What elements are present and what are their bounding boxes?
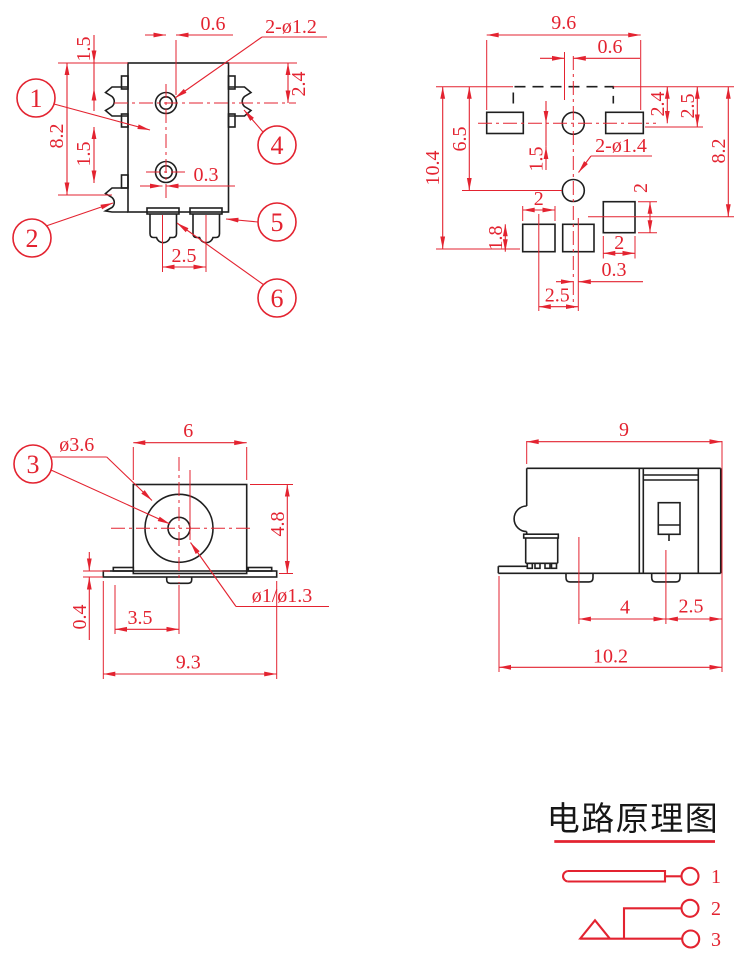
balloon-2: 2 bbox=[13, 203, 113, 257]
dim-9-6: 9.6 bbox=[487, 12, 641, 35]
view-top-left: 1.5 8.2 1.5 2.4 0.6 2-ø1.2 0.3 bbox=[13, 13, 327, 317]
dim-text: 10.2 bbox=[593, 645, 628, 667]
circuit-schematic: 电路原理图 1 2 3 bbox=[547, 801, 721, 951]
switch-contact bbox=[658, 525, 680, 541]
shell-tab bbox=[122, 175, 129, 188]
leader-line bbox=[107, 457, 152, 501]
dim-0-6: 0.6 bbox=[145, 13, 233, 35]
dim-2-5: 2.5 bbox=[666, 596, 722, 619]
balloon-number: 6 bbox=[271, 284, 284, 313]
dim-text: 2.4 bbox=[288, 72, 310, 97]
dim-text: 6 bbox=[183, 420, 193, 442]
dim-text: 2-ø1.2 bbox=[265, 16, 317, 38]
wire bbox=[624, 908, 681, 938]
dim-2-5-right: 2.5 bbox=[677, 87, 699, 127]
dim-text: 1.5 bbox=[73, 37, 95, 62]
terminal-cap bbox=[524, 534, 559, 538]
dim-2-pad-width-b: 2 bbox=[603, 232, 635, 254]
dim-text: 0.3 bbox=[194, 164, 219, 186]
jack-body-outline bbox=[128, 63, 229, 212]
dim-8-2: 8.2 bbox=[46, 63, 68, 195]
terminal-2-label: 2 bbox=[711, 898, 721, 920]
solder-tab-cap bbox=[147, 208, 179, 214]
dim-text: 0.6 bbox=[598, 36, 623, 58]
schematic-title: 电路原理图 bbox=[547, 801, 720, 838]
view-mid-left: 6 ø3.6 4.8 ø1/ø1.3 0.4 3.5 9.3 bbox=[14, 420, 329, 679]
dim-text: 0.6 bbox=[201, 13, 226, 35]
foot-tab bbox=[566, 573, 593, 582]
terminal-1-label: 1 bbox=[711, 866, 721, 888]
balloon-number: 1 bbox=[30, 84, 43, 113]
left-top-clip bbox=[106, 87, 129, 116]
leader-line bbox=[175, 37, 262, 98]
switch-window bbox=[658, 503, 680, 535]
dim-9-3: 9.3 bbox=[103, 652, 276, 674]
terminal-3-label: 3 bbox=[711, 929, 721, 951]
balloon-number: 2 bbox=[26, 224, 39, 253]
part-outline bbox=[106, 63, 252, 243]
dim-text: 3.5 bbox=[128, 607, 153, 629]
center-pin-symbol bbox=[563, 871, 681, 882]
dim-text: 0.4 bbox=[69, 605, 91, 630]
terminal-3-circle bbox=[682, 931, 699, 948]
dim-1-5: 1.5 bbox=[526, 101, 548, 172]
leader-line bbox=[579, 156, 592, 173]
dim-text: 9 bbox=[619, 419, 629, 441]
section-divider bbox=[639, 468, 643, 573]
dim-6-5: 6.5 bbox=[449, 87, 471, 191]
dim-2-pad-height: 2 bbox=[630, 183, 652, 233]
pin-barrel-cap bbox=[563, 871, 568, 882]
dim-text: 2 bbox=[614, 232, 624, 254]
dim-text: 2.5 bbox=[677, 94, 699, 119]
balloon-5: 5 bbox=[226, 203, 296, 241]
leader-line bbox=[51, 470, 170, 524]
dim-text: 0.3 bbox=[602, 259, 627, 281]
inner-bar bbox=[643, 475, 698, 480]
centerlines bbox=[111, 457, 250, 584]
dim-6: 6 bbox=[133, 420, 246, 443]
dim-2-4: 2.4 bbox=[647, 87, 669, 124]
dim-text: 8.2 bbox=[708, 139, 730, 164]
solder-tab bbox=[150, 214, 177, 243]
serration-tooth bbox=[527, 563, 532, 568]
dim-text: 6.5 bbox=[449, 127, 471, 152]
terminal-block bbox=[526, 538, 558, 563]
dim-text: 2-ø1.4 bbox=[595, 135, 647, 157]
terminal-1-circle bbox=[682, 868, 699, 885]
dim-10-2: 10.2 bbox=[499, 645, 722, 667]
right-top-clip bbox=[229, 87, 252, 116]
leader-line bbox=[191, 543, 237, 607]
dim-2-pad-width: 2 bbox=[523, 188, 555, 210]
dim-0-4: 0.4 bbox=[69, 552, 91, 640]
leader-line bbox=[46, 203, 113, 226]
serration-tooth bbox=[552, 563, 557, 568]
technical-drawing: 1.5 8.2 1.5 2.4 0.6 2-ø1.2 0.3 bbox=[0, 0, 750, 965]
leader-line bbox=[54, 104, 150, 130]
dim-text: 4.8 bbox=[267, 512, 289, 537]
dim-0-3: 0.3 bbox=[140, 164, 235, 186]
dim-2-4: 2.4 bbox=[288, 63, 310, 103]
dim-text: ø1/ø1.3 bbox=[252, 585, 313, 607]
dim-4: 4 bbox=[579, 597, 666, 619]
drawing-sheet: 1.5 8.2 1.5 2.4 0.6 2-ø1.2 0.3 bbox=[0, 0, 750, 965]
dim-text: ø3.6 bbox=[59, 434, 94, 456]
side-bump bbox=[514, 506, 527, 532]
dim-1-8: 1.8 bbox=[485, 224, 507, 251]
switch-symbol bbox=[580, 908, 682, 938]
dim-hole-callout: 2-ø1.4 bbox=[579, 135, 653, 173]
part-outline bbox=[487, 87, 644, 252]
dim-1-5-bottom: 1.5 bbox=[73, 127, 95, 183]
leader-line bbox=[226, 219, 258, 222]
dim-10-4: 10.4 bbox=[422, 87, 444, 249]
balloon-4: 4 bbox=[244, 110, 296, 164]
dim-0-6: 0.6 bbox=[540, 36, 640, 58]
dim-4-8: 4.8 bbox=[267, 485, 289, 574]
balloon-1: 1 bbox=[17, 79, 150, 130]
dim-text: 2.5 bbox=[172, 245, 197, 267]
balloon-number: 3 bbox=[27, 450, 40, 479]
dim-2-5-bottom: 2.5 bbox=[539, 285, 579, 307]
dim-text: 9.6 bbox=[551, 12, 576, 34]
switch-contact-triangle bbox=[580, 920, 609, 938]
dim-text: 1.5 bbox=[526, 147, 548, 172]
dim-8-2: 8.2 bbox=[708, 87, 730, 217]
balloon-number: 5 bbox=[271, 208, 284, 237]
courtyard-dashed-outline bbox=[513, 87, 613, 104]
serration-tooth bbox=[535, 563, 540, 568]
serration-tooth bbox=[545, 563, 550, 568]
dim-text: 9.3 bbox=[176, 652, 201, 674]
dim-text: 1.5 bbox=[73, 142, 95, 167]
terminal-2-circle bbox=[682, 900, 699, 917]
dim-text: 8.2 bbox=[46, 124, 68, 149]
dim-2-5: 2.5 bbox=[163, 245, 207, 267]
dim-dia-1-1-3: ø1/ø1.3 bbox=[191, 543, 330, 608]
base-lip bbox=[248, 568, 271, 572]
dim-text: 1.8 bbox=[485, 226, 507, 251]
dim-dia-3-6: ø3.6 bbox=[52, 434, 152, 501]
balloon-number: 4 bbox=[271, 131, 284, 160]
view-mid-right: 9 4 2.5 10.2 bbox=[498, 419, 722, 672]
leader-line bbox=[244, 110, 263, 132]
view-top-right: 9.6 0.6 10.4 6.5 1.5 2-ø1.4 2.4 bbox=[422, 12, 734, 311]
dim-text: 10.4 bbox=[422, 151, 444, 186]
dim-3-5: 3.5 bbox=[115, 607, 179, 629]
pin-barrel bbox=[568, 871, 665, 882]
extension-lines bbox=[83, 447, 293, 679]
dim-1-5-top: 1.5 bbox=[73, 35, 95, 111]
dim-9: 9 bbox=[527, 419, 722, 442]
dim-text: 2 bbox=[534, 188, 544, 210]
dim-text: 2.4 bbox=[647, 92, 669, 117]
dim-text: 2 bbox=[630, 183, 652, 193]
extension-lines bbox=[436, 40, 734, 311]
dim-text: 4 bbox=[620, 597, 630, 619]
dim-text: 2.5 bbox=[545, 285, 570, 307]
dim-0-3: 0.3 bbox=[556, 259, 643, 282]
base-lip bbox=[113, 568, 133, 572]
part-outline bbox=[498, 468, 720, 582]
dim-text: 2.5 bbox=[679, 596, 704, 618]
left-bottom-clip bbox=[106, 188, 129, 212]
solder-tab-cap bbox=[190, 208, 222, 214]
